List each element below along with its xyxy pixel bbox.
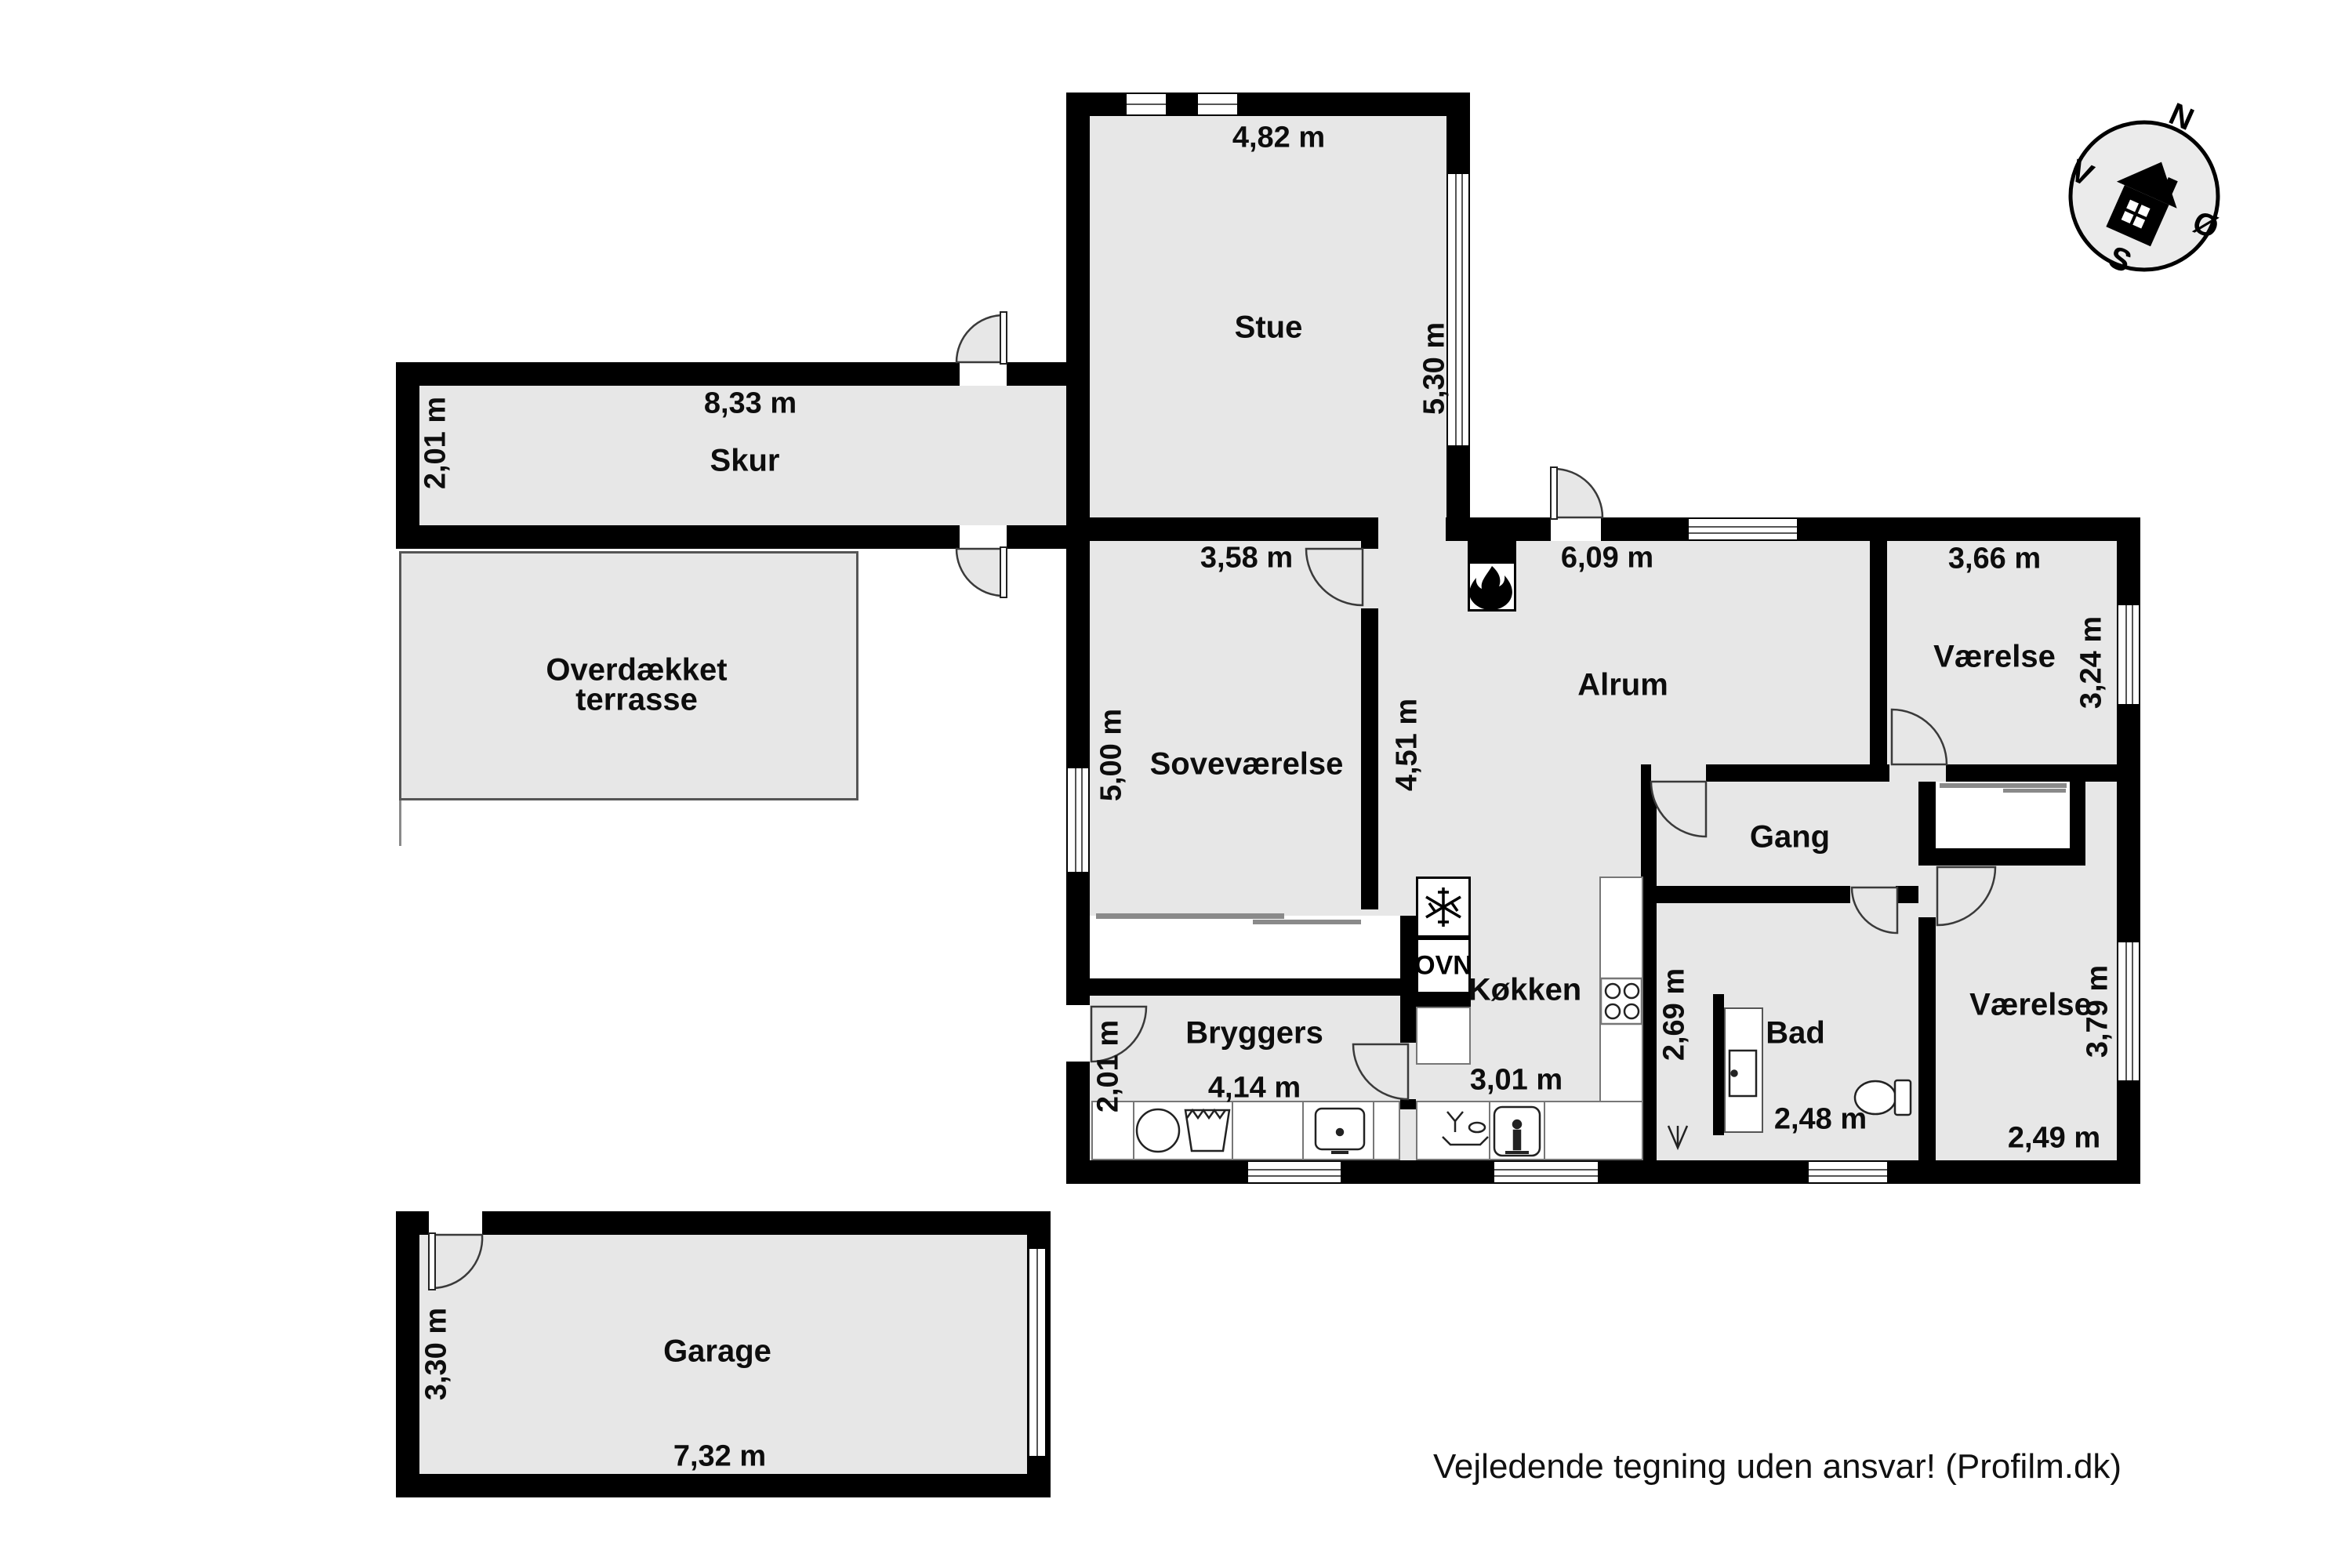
door-arc <box>1554 469 1602 517</box>
faucet-icon <box>1513 1120 1521 1128</box>
room-label-bad: Bad <box>1766 1016 1825 1051</box>
dim-garage-width: 7,32 m <box>673 1440 766 1474</box>
door-arc <box>432 1235 482 1288</box>
room-label-vaerelse-se: Værelse <box>1969 988 2092 1023</box>
room-label-skur: Skur <box>710 444 780 479</box>
floor-drain-icon <box>1668 1126 1687 1148</box>
door-leaf <box>1551 467 1557 519</box>
shower-door-knob <box>1732 1071 1737 1076</box>
plate-icon <box>1469 1123 1485 1132</box>
plan-drawing-layer: N Ø S V <box>0 0 2352 1568</box>
dish-stand-icon <box>1443 1137 1488 1145</box>
dim-bryggers-width: 4,14 m <box>1208 1072 1301 1105</box>
dim-bryggers-height: 2,01 m <box>1092 1020 1126 1112</box>
door-arc <box>956 315 1004 362</box>
oven-label: OVN <box>1414 951 1472 982</box>
door-arc <box>1306 549 1363 605</box>
room-label-vaerelse-ne: Værelse <box>1933 640 2056 675</box>
room-label-garage: Garage <box>663 1334 771 1370</box>
dim-vaerelse-se-height: 3,79 m <box>2082 965 2115 1058</box>
door-arc <box>1892 710 1947 764</box>
dim-alrum-height: 4,51 m <box>1391 699 1425 791</box>
cooktop-icon <box>1601 978 1642 1024</box>
room-label-alrum: Alrum <box>1577 668 1668 703</box>
door-arc <box>1937 867 1995 925</box>
compass-rose: N Ø S V <box>2065 96 2223 280</box>
room-label-terrasse-line2: terrasse <box>575 683 698 718</box>
toilet-tank <box>1895 1080 1911 1115</box>
fireplace-icon <box>1469 566 1512 610</box>
dim-stue-width: 4,82 m <box>1232 122 1325 155</box>
door-arc <box>1852 887 1897 933</box>
disclaimer-text: Vejledende tegning uden ansvar! (Profilm… <box>1433 1447 2122 1486</box>
floorplan-canvas: N Ø S V Stue 4,82 m 5,30 m Skur 8,33 m 2… <box>0 0 2352 1568</box>
washing-machine-icon <box>1137 1109 1179 1152</box>
room-label-stue: Stue <box>1235 310 1303 346</box>
door-leaf <box>1000 547 1007 597</box>
sink-drain <box>1337 1129 1343 1135</box>
dim-alrum-width: 6,09 m <box>1561 542 1653 575</box>
room-label-bryggers: Bryggers <box>1185 1016 1323 1051</box>
dim-koekken-width: 3,01 m <box>1470 1064 1563 1098</box>
door-leaf <box>1000 312 1007 364</box>
dish-rack-icon <box>1447 1112 1463 1121</box>
room-label-sovevaerelse: Soveværelse <box>1150 747 1344 782</box>
door-arc <box>1651 782 1706 837</box>
dim-vaerelse-ne-width: 3,66 m <box>1948 543 2041 576</box>
dim-garage-height: 3,30 m <box>420 1308 454 1400</box>
room-label-koekken: Køkken <box>1468 973 1582 1008</box>
door-arc <box>1353 1044 1408 1099</box>
dim-stue-height: 5,30 m <box>1418 322 1452 415</box>
dim-bad-width: 2,48 m <box>1774 1103 1867 1137</box>
dim-koekken-height: 2,69 m <box>1658 968 1692 1061</box>
dim-sovevaerelse-height: 5,00 m <box>1095 709 1129 801</box>
dim-skur-width: 8,33 m <box>704 387 797 421</box>
door-leaf <box>429 1233 435 1290</box>
room-label-gang: Gang <box>1750 820 1830 855</box>
dim-vaerelse-se-width: 2,49 m <box>2008 1122 2100 1156</box>
dim-sovevaerelse-width: 3,58 m <box>1200 542 1293 575</box>
faucet-icon <box>1514 1131 1520 1149</box>
dim-skur-height: 2,01 m <box>419 397 453 489</box>
door-arc <box>956 549 1004 596</box>
freezer-icon <box>1426 887 1461 927</box>
dim-vaerelse-ne-height: 3,24 m <box>2075 616 2109 709</box>
